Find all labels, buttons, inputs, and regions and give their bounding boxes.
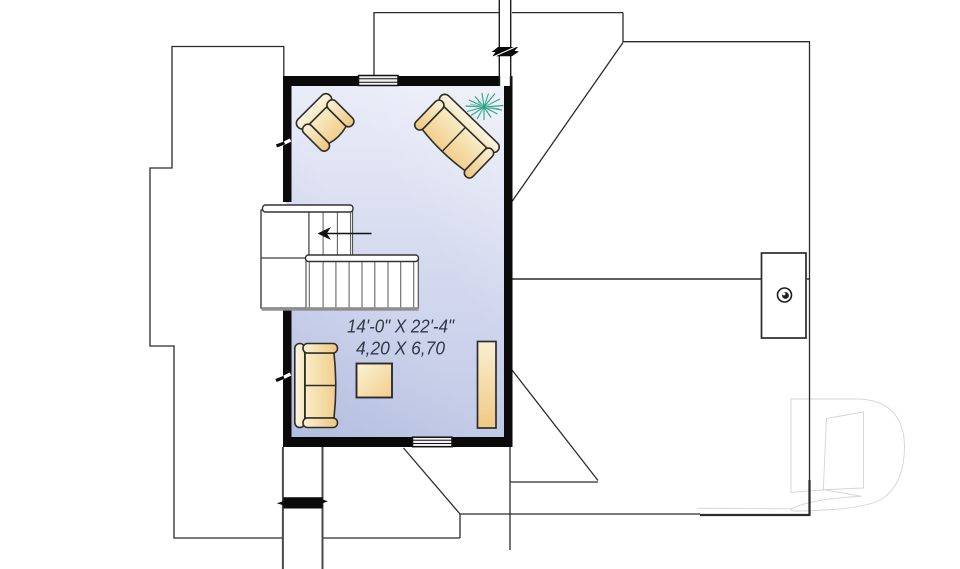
svg-text:14'-0" X 22'-4": 14'-0" X 22'-4" xyxy=(347,317,456,337)
svg-text:4,20 X 6,70: 4,20 X 6,70 xyxy=(356,339,445,359)
